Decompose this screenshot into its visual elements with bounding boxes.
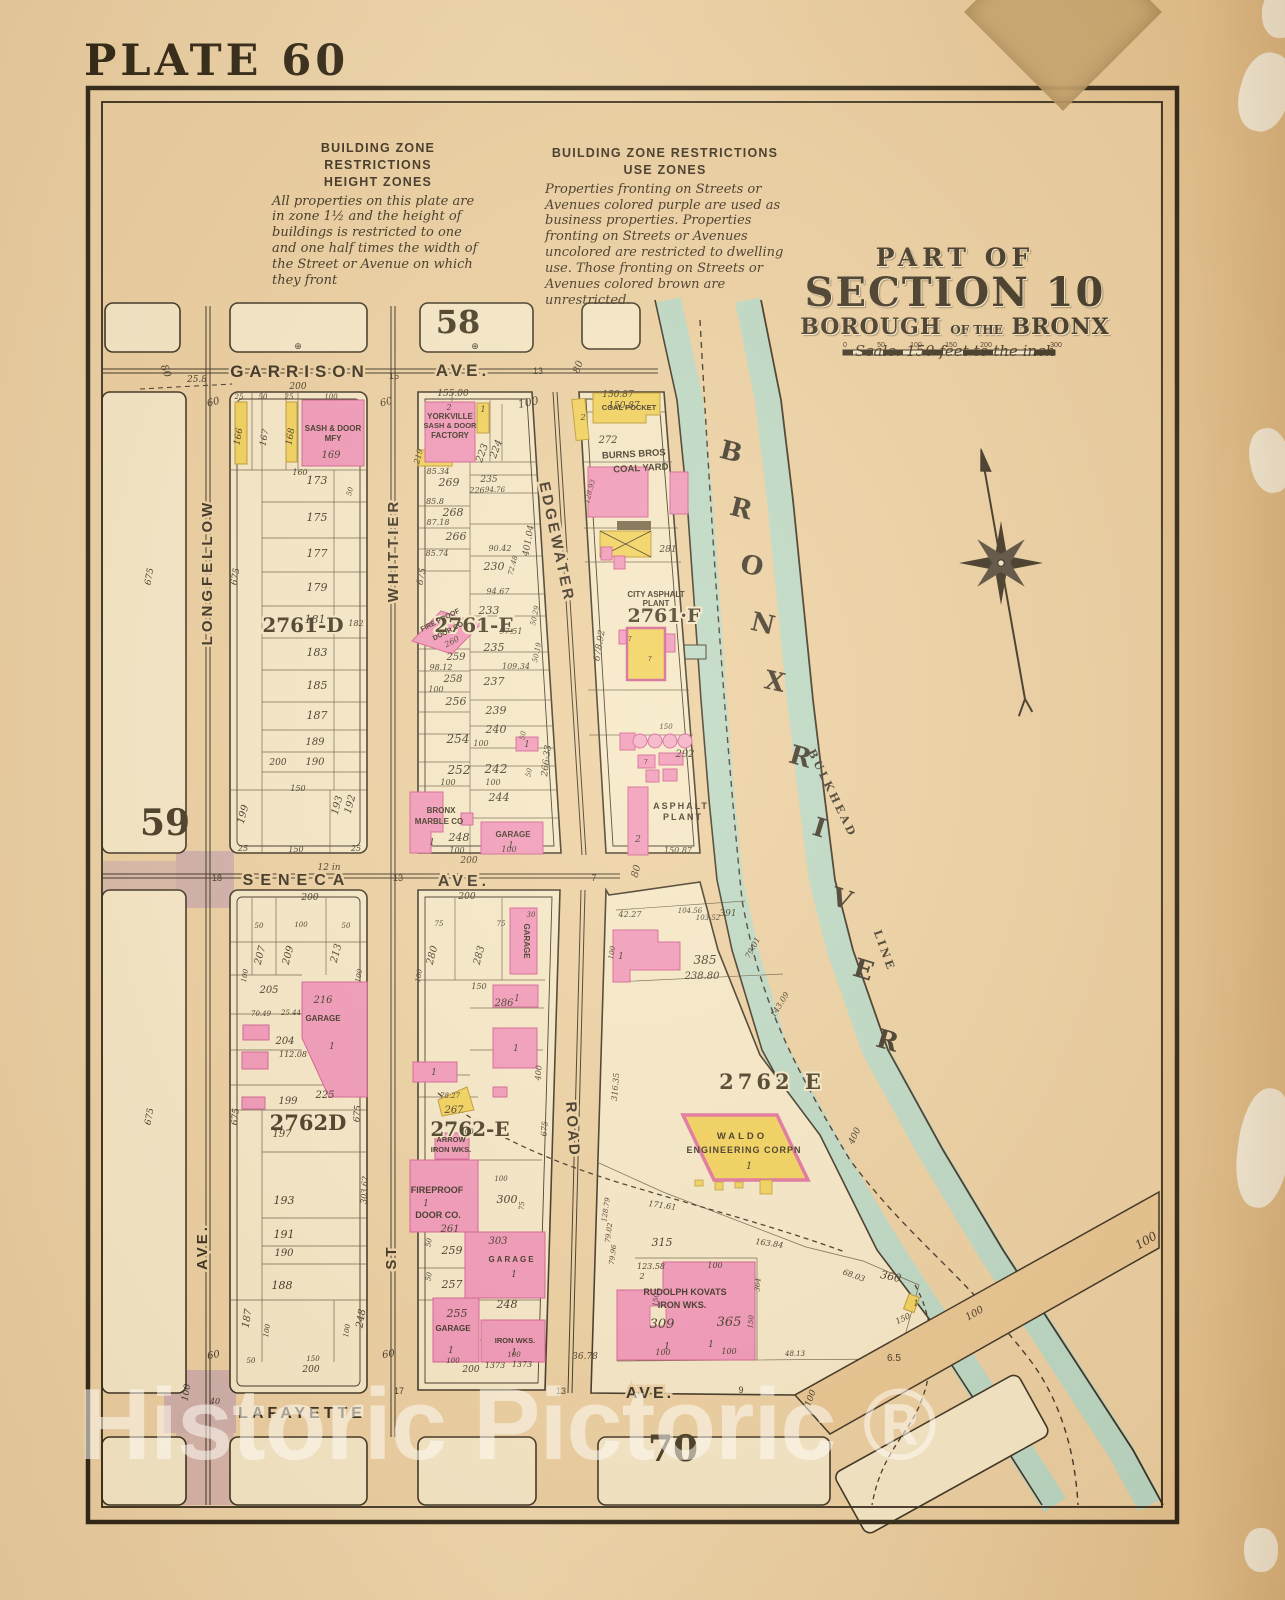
waldo-engineering-label: WALDO [717, 1131, 767, 1142]
map-label: 1 [429, 838, 435, 848]
map-label: 75 [518, 1201, 527, 1211]
map-label: 189 [305, 737, 325, 748]
map-label: 60 [206, 1349, 221, 1362]
map-label: 48.13 [784, 1350, 806, 1358]
map-label: 150 [659, 723, 673, 731]
map-label: 191 [274, 1228, 295, 1241]
map-label: 85.8 [426, 497, 444, 506]
map-label: 1 [708, 1340, 714, 1350]
map-label: 303.62 [359, 1176, 369, 1204]
map-label: 175 [307, 511, 328, 524]
map-label: 190 [274, 1248, 294, 1259]
map-label: IRON WKS. [658, 1300, 707, 1310]
map-label: 225 [314, 1090, 334, 1101]
map-label: 226 [468, 486, 484, 495]
map-label: 259 [441, 1244, 463, 1257]
map-label: 150.87 [664, 846, 693, 855]
atlas-page: PLATE 60 [0, 0, 1285, 1600]
map-label: 17 [394, 1386, 404, 1396]
map-label: 205 [258, 985, 278, 996]
map-label: PLANT [643, 599, 670, 608]
map-label: 1 [746, 1161, 752, 1172]
adjacent-plate-58: 58 [436, 303, 481, 341]
map-label: 103.52 [696, 914, 721, 922]
map-label: 204 [274, 1036, 294, 1047]
asphalt-plant-label: ASPHALT [653, 801, 709, 811]
use-zones-title: BUILDING ZONE RESTRICTIONS [545, 145, 785, 162]
map-label: 179 [307, 581, 328, 594]
map-label: 1 [423, 1199, 429, 1209]
map-label: 200 [457, 892, 475, 902]
yorkville-factory-label: YORKVILLE [427, 412, 473, 421]
map-label: 100 [494, 1175, 508, 1183]
map-label: 1 [511, 1270, 517, 1280]
map-label: MARBLE CO [415, 817, 463, 826]
map-label: FACTORY [431, 431, 469, 440]
street-longfellow: LONGFELLOW [199, 499, 216, 646]
map-label: 292 [674, 749, 694, 760]
map-label: 2 [634, 835, 641, 845]
map-label: 244 [488, 791, 510, 804]
adjacent-plate-70: 70 [648, 1428, 698, 1470]
section-title-borough: BOROUGH OF THE BRONX [795, 314, 1115, 340]
map-label: 7 [648, 656, 652, 663]
use-zones-note: BUILDING ZONE RESTRICTIONS USE ZONES Pro… [545, 145, 785, 309]
map-label: 1 [513, 1044, 519, 1054]
map-label: 216 [312, 995, 333, 1006]
map-label: 187 [307, 709, 328, 722]
map-label: 300 [497, 1193, 518, 1206]
map-label: GARAGE [495, 830, 531, 839]
map-label: 9 [738, 1385, 743, 1395]
plate58-stub-block [582, 303, 640, 349]
map-label: 94.67 [487, 587, 511, 596]
block-label-2761F: 2761·F [628, 605, 701, 627]
map-label: 150 [746, 1314, 755, 1329]
map-label: 199 [278, 1096, 298, 1107]
map-label: 230 [483, 560, 505, 573]
map-label: 78.27 [440, 1092, 461, 1100]
map-label: 281 [658, 545, 676, 555]
rudolph-kovats-label: RUDOLPH KOVATS [643, 1287, 726, 1297]
map-label: 200 [268, 758, 286, 768]
map-label: 160 [292, 468, 307, 477]
height-zones-title: BUILDING ZONE RESTRICTIONS [272, 140, 484, 174]
map-label: 100 [707, 1261, 722, 1270]
map-label: 100 [440, 778, 455, 787]
map-label: 2 [638, 1272, 644, 1281]
map-label: 25 [350, 844, 361, 853]
map-label: 97.51 [500, 627, 523, 636]
bronx-marble-label: BRONX [427, 806, 457, 815]
map-label: 258 [442, 674, 462, 685]
map-label: 87.18 [427, 518, 450, 527]
map-label: 272 [597, 435, 617, 446]
city-asphalt-label: CITY ASPHALT [627, 590, 684, 599]
map-label: 18 [212, 873, 222, 883]
scale-note: Scale: 150 feet to the inch [795, 342, 1115, 360]
map-label: 675 [230, 1108, 241, 1126]
map-label: 200 [461, 1365, 479, 1375]
map-label: 100 [324, 393, 338, 401]
map-label: 303 [488, 1236, 507, 1247]
map-label: 7 [591, 873, 596, 883]
map-label: 150 [306, 1355, 320, 1363]
map-label: 100 [446, 1357, 460, 1365]
map-label: 193 [274, 1194, 295, 1207]
map-label: 85.34 [427, 467, 450, 476]
block-label-2761D: 2761-D [262, 613, 343, 637]
section-title-part-of: PART OF [795, 243, 1115, 272]
map-label: 173 [307, 474, 328, 487]
map-label: 182 [348, 619, 363, 628]
map-label: 235 [483, 641, 505, 654]
map-label: 188 [272, 1279, 293, 1292]
map-label: 183 [307, 646, 328, 659]
map-label: GARAGE [488, 1255, 535, 1264]
street-whittier-st: ST [383, 1244, 400, 1269]
plate58-stub-block [105, 303, 180, 352]
map-label: 2 [445, 403, 451, 412]
map-label: 16 [389, 371, 399, 381]
map-label: 1373 [485, 1361, 505, 1370]
map-label: 257 [441, 1278, 463, 1291]
map-label: 255 [446, 1307, 468, 1320]
map-label: 309 [650, 1317, 675, 1332]
street-lafayette-ave: AVE. [626, 1385, 674, 1402]
map-label: 100 [428, 685, 443, 694]
map-label: 75 [497, 920, 506, 928]
map-label: 150.87 [602, 390, 634, 400]
map-label: 315 [652, 1236, 673, 1249]
map-label: 248 [496, 1298, 518, 1311]
map-label: 13 [533, 366, 543, 376]
west-margin-block [102, 392, 186, 853]
map-label: 155.00 [437, 389, 469, 399]
map-label: 1 [508, 841, 514, 851]
map-label: 267 [443, 1105, 464, 1116]
map-label: 259 [445, 652, 466, 663]
map-label: 7 [628, 636, 632, 643]
map-label: 1 [431, 1068, 437, 1078]
map-label: 248 [448, 831, 470, 844]
map-label: 50 [255, 922, 264, 930]
map-label: SASH & DOOR [424, 421, 478, 430]
map-label: 1 [448, 1346, 454, 1356]
map-label: GARAGE [435, 1324, 471, 1333]
fireproof-door-co-building [410, 1160, 478, 1232]
map-label: 252 [447, 763, 471, 777]
map-label: 385 [694, 953, 717, 967]
adjacent-plate-59: 59 [140, 802, 190, 844]
map-label: 364 [753, 1278, 762, 1292]
map-label: 185 [307, 679, 328, 692]
block-label-2762E-east: 2762 E [719, 1069, 825, 1094]
map-label: 7 [644, 759, 648, 766]
map-label: 200 [300, 893, 318, 903]
map-label: 100 [721, 1347, 736, 1356]
arrow-iron-works-label: ARROW [436, 1135, 466, 1144]
height-zones-body: All properties on this plate are in zone… [272, 194, 484, 289]
map-label: DOOR CO. [415, 1210, 461, 1220]
plate70-stub-block [418, 1437, 536, 1505]
map-label: 200 [288, 382, 306, 392]
street-whittier: WHITTIER [385, 498, 402, 603]
map-label: 13 [556, 1386, 566, 1396]
map-label: 25 [234, 393, 244, 401]
map-label: 200 [459, 856, 477, 866]
map-label: 256 [445, 695, 467, 708]
map-label: 50 [247, 1357, 256, 1365]
street-lafayette: LAFAYETTE [238, 1405, 366, 1422]
street-garrison-ave: AVE. [436, 361, 490, 380]
map-label: 1 [664, 1342, 670, 1352]
map-label: 25 [284, 393, 294, 401]
map-label: 25.8 [186, 375, 207, 385]
section-title: PART OF SECTION 10 BOROUGH OF THE BRONX … [795, 243, 1115, 360]
use-zones-body: Properties fronting on Streets or Avenue… [545, 182, 785, 309]
map-label: 391 [719, 909, 736, 919]
map-label: 190 [305, 757, 325, 768]
map-label: 25.44 [280, 1009, 301, 1017]
map-label: 233 [478, 604, 500, 617]
map-label: 109.34 [502, 662, 530, 671]
use-zones-subtitle: USE ZONES [545, 162, 785, 179]
map-label: 100 [449, 846, 464, 855]
map-label: 242 [484, 762, 508, 776]
map-label: GARAGE [522, 923, 531, 959]
map-label: PLANT [663, 812, 703, 822]
map-label: 85.74 [426, 549, 449, 558]
hatched-strip [617, 521, 651, 530]
map-label: 42.27 [618, 910, 643, 919]
map-label: ENGINEERING CORPN [686, 1145, 801, 1155]
map-label: 675 [539, 1121, 549, 1137]
map-label: 150 [290, 784, 305, 793]
height-zones-note: BUILDING ZONE RESTRICTIONS HEIGHT ZONES … [272, 140, 484, 289]
map-label: 240 [485, 723, 507, 736]
map-label: 286 [493, 998, 514, 1009]
map-label: 100 [294, 921, 308, 929]
torn-edge [1244, 1528, 1278, 1572]
plate70-stub-block [598, 1437, 830, 1505]
map-label: 1 [618, 952, 624, 962]
map-label: 70.49 [251, 1010, 272, 1018]
map-label: 150 [471, 982, 486, 991]
city-asphalt-building [627, 628, 665, 680]
map-label: IRON WKS. [431, 1145, 471, 1154]
west-margin-block [102, 1437, 186, 1505]
map-label: 40 [209, 1397, 220, 1406]
map-label: 30 [527, 911, 536, 919]
map-label: 112.08 [279, 1050, 307, 1059]
map-label: 25 [237, 844, 248, 853]
map-label: 36.78 [572, 1352, 598, 1362]
street-garrison: GARRISON [230, 362, 370, 381]
map-label: 239 [485, 704, 507, 717]
map-label: 50 [259, 393, 268, 401]
map-label: 12 in [318, 863, 341, 873]
map-label: 1 [480, 405, 485, 414]
map-label: 1 [511, 1348, 517, 1358]
map-label: 13 [393, 873, 403, 883]
street-seneca: SENECA [243, 872, 352, 889]
street-longfellow-ave: AVE. [194, 1224, 211, 1270]
map-label: 365 [717, 1315, 742, 1330]
map-label: 1 [514, 994, 520, 1004]
west-margin-block [102, 890, 186, 1393]
map-label: ⊕ [294, 341, 302, 351]
street-seneca-ave: AVE. [438, 873, 490, 890]
map-label: 50 [342, 922, 351, 930]
map-label: 181 [305, 613, 326, 626]
dock-inlet [684, 645, 706, 659]
map-label: 150 [288, 845, 303, 854]
map-label: 60 [381, 1348, 396, 1361]
map-label: 237 [483, 675, 505, 688]
map-label: ⊕ [471, 341, 479, 351]
map-label: 254 [446, 732, 470, 746]
fireproof-door-co-label: FIREPROOF [411, 1185, 464, 1195]
map-label: 94.76 [485, 486, 506, 494]
map-label: 2 [579, 413, 585, 422]
map-label: IRON WKS. [495, 1336, 535, 1345]
map-label: 75 [435, 920, 444, 928]
map-label: 100 [473, 739, 488, 748]
map-label: 235 [479, 475, 497, 485]
map-label: 400 [533, 1065, 543, 1082]
map-label: 123.58 [637, 1262, 665, 1271]
map-label: 177 [307, 547, 328, 560]
map-label: 200 [301, 1365, 319, 1375]
map-label: 100 [485, 778, 500, 787]
map-label: 1 [913, 1299, 918, 1308]
map-label: 6.5 [887, 1353, 901, 1364]
map-label: 1 [329, 1042, 335, 1052]
map-label: GARAGE [305, 1014, 341, 1023]
coal-pocket-label: COAL POCKET [602, 403, 657, 412]
map-label: 197 [272, 1129, 292, 1140]
map-label: 1373 [512, 1360, 532, 1369]
map-label: 266 [445, 530, 467, 543]
map-label: 675 [352, 1105, 363, 1123]
map-label: MFY [325, 434, 343, 443]
map-label: 98.12 [430, 663, 453, 672]
plate70-stub-block [230, 1437, 367, 1505]
sash-door-mfy-label: SASH & DOOR [305, 424, 362, 433]
height-zones-subtitle: HEIGHT ZONES [272, 174, 484, 191]
section-title-section: SECTION 10 [795, 272, 1115, 314]
map-label: 169 [321, 450, 341, 461]
map-label: 261 [439, 1224, 459, 1235]
map-label: 90.42 [489, 544, 512, 553]
map-label: 269 [438, 476, 460, 489]
map-label: 238.80 [684, 971, 721, 982]
